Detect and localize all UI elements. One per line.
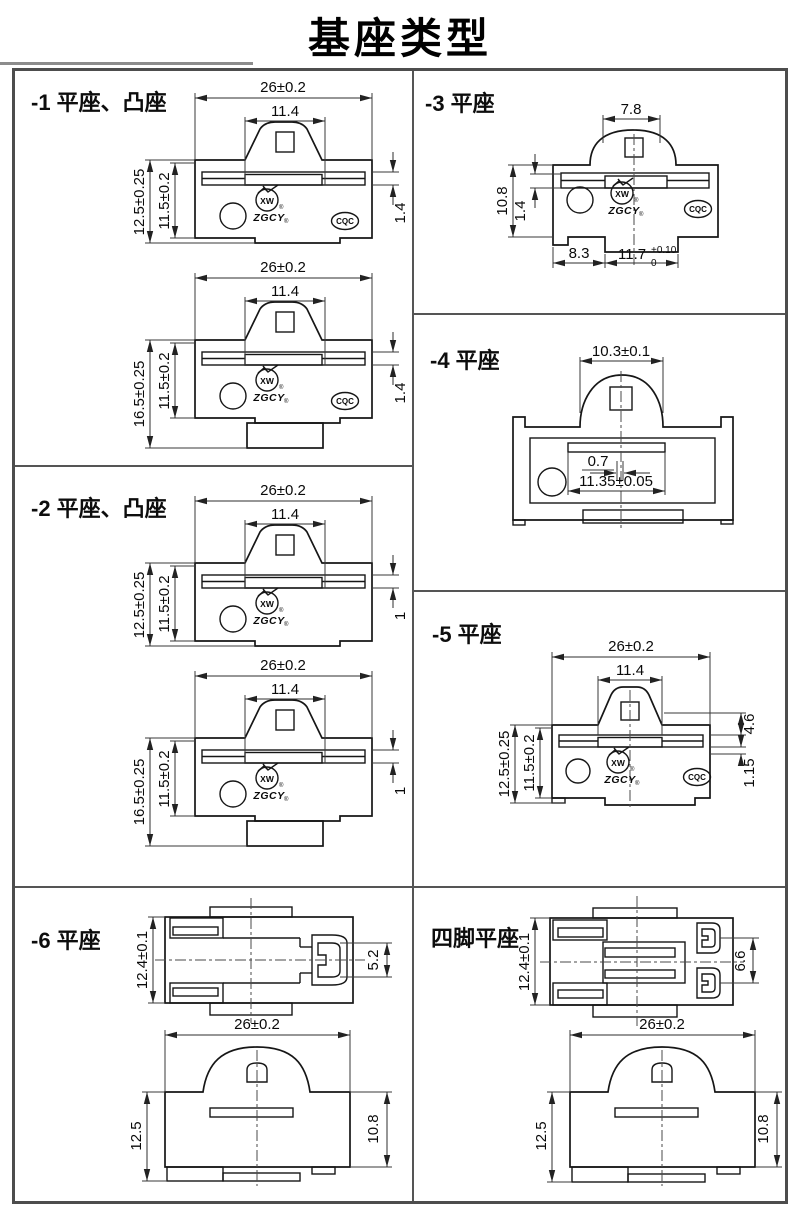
- dim-width: 26±0.2: [260, 482, 306, 499]
- pedestal-block: [247, 821, 323, 846]
- dim-width: 26±0.2: [639, 1016, 685, 1033]
- dim-height: 12.5±0.25: [131, 169, 148, 236]
- dim-height: 12.5±0.25: [496, 731, 513, 798]
- diagram-frame: -1 平座、凸座 -2 平座、凸座 -3 平座 -4 平座 -5 平座 -6 平…: [12, 68, 788, 1204]
- right-foot: [721, 520, 733, 524]
- page-title: 基座类型: [0, 5, 800, 66]
- dim-inner-height: 11.5±0.2: [156, 750, 173, 807]
- dim-width: 26±0.2: [260, 657, 306, 674]
- pedestal-block: [247, 423, 323, 448]
- xw-logo: [603, 747, 640, 787]
- cqc-mark: [332, 393, 359, 410]
- round-hole: [567, 187, 593, 213]
- xw-logo: [252, 185, 289, 225]
- terminal-slot: [210, 1108, 293, 1117]
- left-block-lower: [553, 983, 607, 1005]
- dimensions: 10.3±0.1 0.7 11.35±0.05: [568, 343, 665, 495]
- dim-top-width: 10.3±0.1: [592, 343, 650, 360]
- dim-inner-width: 11.4: [271, 283, 299, 300]
- base-drawing-raised-16_5: 26±0.2 11.4 16.5±0.25 11.5±0.2 1.4: [131, 259, 409, 448]
- top-tab: [593, 908, 677, 918]
- top-view: 12.4±0.1 5.2: [134, 898, 392, 1023]
- dim-slot: 1: [392, 612, 409, 620]
- dim-inner-height: 11.5±0.2: [156, 352, 173, 409]
- base-body-outline: [513, 375, 733, 520]
- dim-slot: 1.4: [512, 201, 529, 222]
- xw-logo: [252, 588, 289, 628]
- panel-7-drawings: 12.4±0.1 6.6 26±0.2 12.5: [412, 886, 785, 1201]
- panel-5-drawing: 26±0.2 11.4 12.5±0.25 11.5±0.2 4.6 1.15: [412, 590, 785, 886]
- base-body-outline: [552, 687, 710, 805]
- base-drawing-flat-12_5: 26±0.2 11.4 12.5±0.25 11.5±0.2 1.4: [131, 79, 409, 243]
- dim-slot: 1.4: [392, 383, 409, 404]
- dim-right-lower: 1.15: [741, 758, 758, 787]
- panel-2-drawings: 26±0.2 11.4 12.5±0.25 11.5±0.2 1: [15, 465, 412, 886]
- top-view: 12.4±0.1 6.6: [516, 896, 759, 1026]
- dim-inner-height: 11.5±0.2: [156, 172, 173, 229]
- cqc-mark: [332, 213, 359, 230]
- dim-inner-width: 11.4: [271, 506, 299, 523]
- middle-slot-upper: [605, 948, 675, 957]
- middle-slot-lower: [605, 970, 675, 978]
- dim-gap: 0.7: [588, 453, 609, 470]
- dim-inner-width: 11.4: [271, 681, 299, 698]
- cqc-mark: [684, 769, 711, 786]
- panel-3-drawing: 7.8 10.8 1.4 8.3 11.7 +0.10 0: [412, 71, 785, 313]
- round-hole: [566, 759, 590, 783]
- xw-logo: [252, 365, 289, 405]
- right-foot: [717, 1167, 740, 1174]
- dim-width: 26±0.2: [608, 638, 654, 655]
- scan-edge-artifact: [0, 62, 253, 65]
- dimensions: 26±0.2 11.4 16.5±0.25 11.5±0.2 1: [131, 657, 409, 846]
- dim-inner-width: 11.4: [271, 103, 299, 120]
- cqc-mark: [685, 201, 712, 218]
- base-drawing-raised-16_5: 26±0.2 11.4 16.5±0.25 11.5±0.2 1: [131, 657, 409, 846]
- dim-bottom-left: 8.3: [569, 245, 590, 262]
- dim-width: 26±0.2: [260, 79, 306, 96]
- dim-width: 26±0.2: [260, 259, 306, 276]
- panel-1-drawings: 26±0.2 11.4 12.5±0.25 11.5±0.2 1.4: [15, 71, 412, 465]
- bottom-tab: [583, 510, 683, 523]
- left-foot: [167, 1167, 223, 1181]
- left-block-lower: [170, 983, 223, 1003]
- dimensions: 26±0.2 11.4 16.5±0.25 11.5±0.2 1.4: [131, 259, 409, 448]
- dim-top-height: 12.4±0.1: [134, 931, 151, 989]
- dim-top-height: 12.4±0.1: [516, 933, 533, 991]
- left-foot: [572, 1167, 628, 1182]
- terminal-slot: [568, 443, 665, 452]
- right-foot: [312, 1167, 335, 1174]
- front-view: 26±0.2 12.5 10.8: [533, 1016, 782, 1186]
- dim-slot: 1.4: [392, 203, 409, 224]
- dim-connector-pitch: 6.6: [732, 951, 749, 972]
- terminal-slot: [615, 1108, 698, 1117]
- dim-height-right: 10.8: [755, 1114, 772, 1143]
- dim-top-width: 7.8: [621, 101, 642, 118]
- dim-height-left: 12.5: [533, 1121, 550, 1150]
- dim-tolerance-upper: +0.10: [651, 245, 677, 256]
- round-hole: [538, 468, 566, 496]
- dim-inner-width: 11.35±0.05: [579, 473, 653, 490]
- xw-logo: [252, 763, 289, 803]
- panel-6-drawings: 12.4±0.1 5.2 26±0.2 12.5: [15, 886, 412, 1201]
- dim-height-left: 12.5: [128, 1121, 145, 1150]
- dim-height: 16.5±0.25: [131, 361, 148, 428]
- dim-bottom-right: 11.7: [618, 246, 646, 263]
- base-drawing-flat-12_5: 26±0.2 11.4 12.5±0.25 11.5±0.2 1: [131, 482, 409, 646]
- dim-inner-height: 11.5±0.2: [156, 575, 173, 632]
- mid-foot: [628, 1174, 705, 1182]
- dim-tolerance-lower: 0: [651, 258, 657, 269]
- dim-height-right: 10.8: [365, 1114, 382, 1143]
- dim-connector: 5.2: [365, 950, 382, 971]
- dim-right-upper: 4.6: [741, 714, 758, 735]
- dim-height: 16.5±0.25: [131, 759, 148, 826]
- dim-width: 26±0.2: [234, 1016, 280, 1033]
- dim-height: 10.8: [494, 186, 511, 215]
- dim-inner-width: 11.4: [616, 662, 644, 679]
- panel-4-drawing: 10.3±0.1 0.7 11.35±0.05: [412, 313, 785, 590]
- base-body-outline: [553, 130, 718, 252]
- dimensions: 7.8 10.8 1.4 8.3 11.7 +0.10 0: [494, 101, 678, 269]
- mid-foot: [223, 1173, 300, 1181]
- dim-height: 12.5±0.25: [131, 572, 148, 639]
- xw-logo: [607, 178, 644, 218]
- dim-inner-height: 11.5±0.2: [521, 734, 538, 791]
- front-view: 26±0.2 12.5 10.8: [128, 1016, 392, 1186]
- dim-slot: 1: [392, 787, 409, 795]
